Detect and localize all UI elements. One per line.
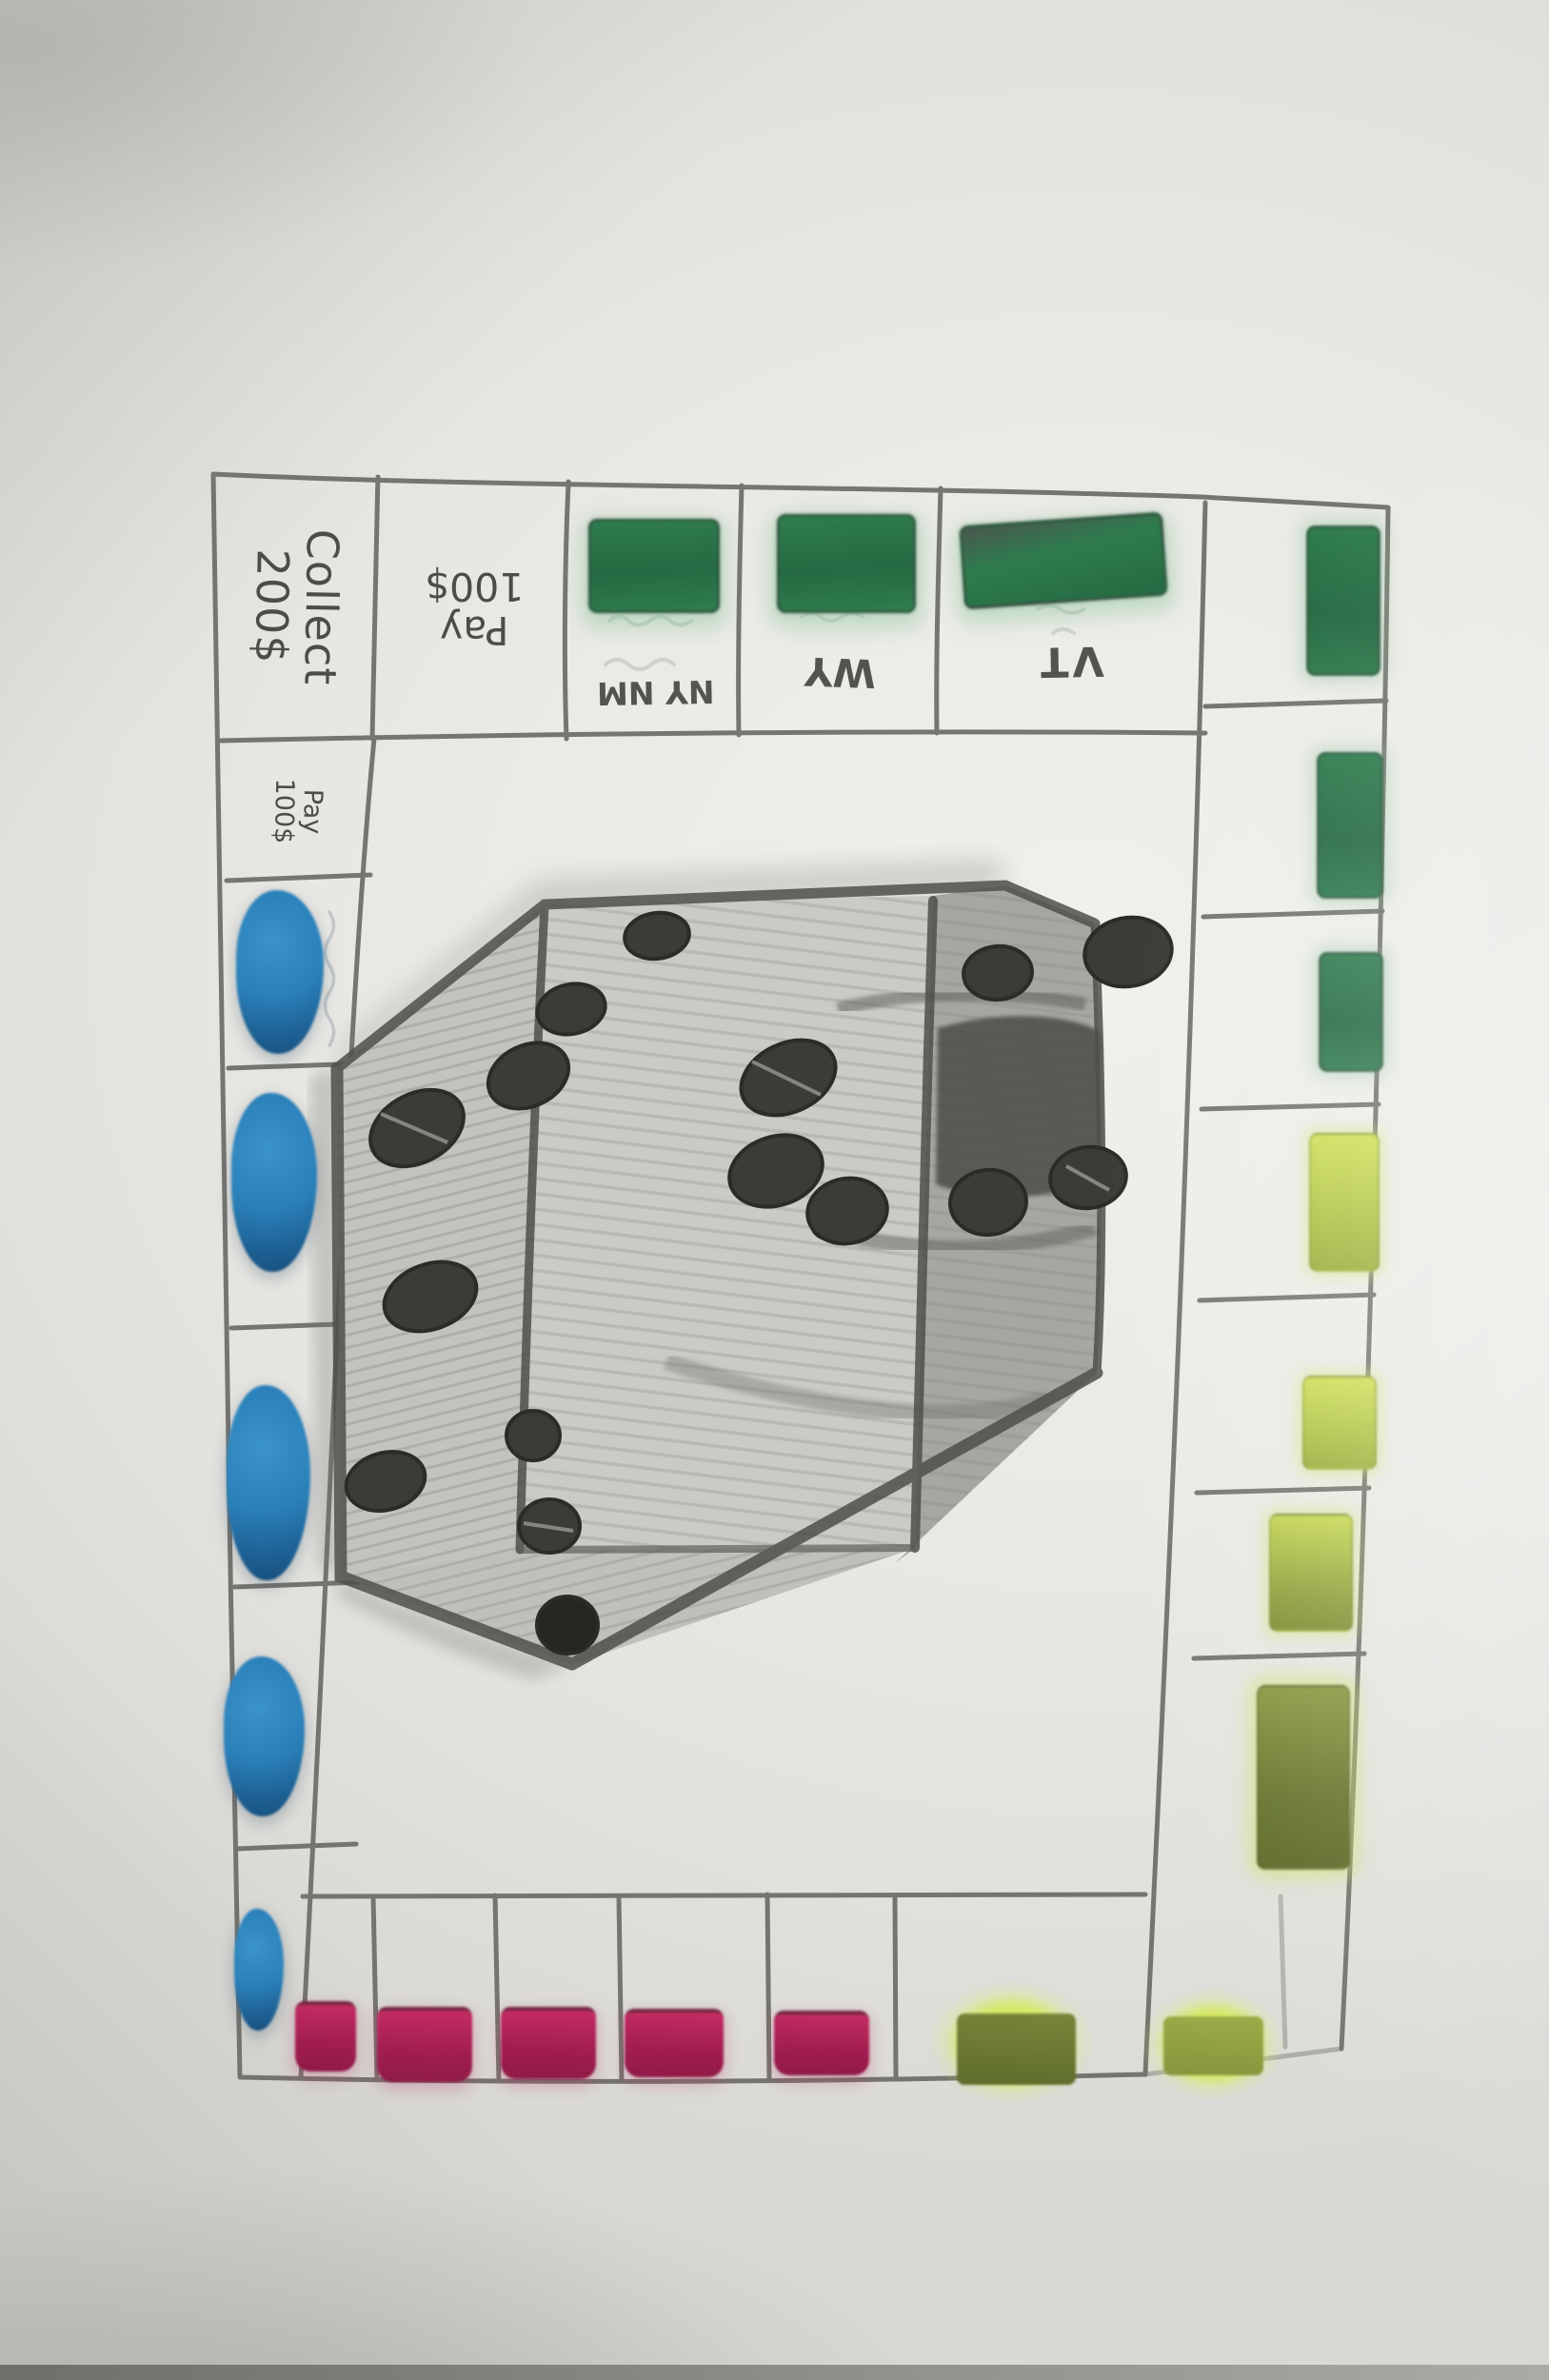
corner-collect-200-label: Collect 200$ [215, 473, 377, 742]
die-sketch [310, 863, 1178, 1679]
pay-100-left-text: Pay 100$ [268, 778, 327, 844]
green-bar-top-1 [588, 519, 720, 613]
green-bar-right-corner [1306, 526, 1380, 676]
photo-of-hand-drawn-board-game: Collect 200$ Pay 100$ Pay 100$ NY NM WY … [0, 0, 1549, 2380]
chartreuse-blob-bottom-2-core [1163, 2016, 1263, 2075]
pink-bar-5 [774, 2011, 869, 2075]
chartreuse-bar-right-3 [1269, 1514, 1353, 1632]
green-bar-right-3 [1319, 952, 1383, 1072]
chartreuse-bar-right-1 [1309, 1133, 1380, 1272]
green-bar-right-2 [1317, 752, 1383, 899]
pay-100-top-label: Pay 100$ [379, 476, 569, 739]
property-abbr-1: NY NM [571, 657, 741, 725]
pink-bar-1 [295, 2001, 356, 2072]
pink-bar-3 [501, 2007, 596, 2079]
green-bar-top-2 [777, 514, 916, 613]
pink-bar-4 [625, 2009, 724, 2077]
green-bar-top-3 [959, 512, 1168, 610]
pay-100-top-text: Pay 100$ [425, 564, 524, 651]
pay-100-left-label: Pay 100$ [225, 741, 369, 882]
property-abbr-3: VT [988, 625, 1152, 697]
corner-collect-200-text: Collect 200$ [246, 528, 347, 686]
pink-bar-2 [377, 2007, 472, 2082]
chartreuse-bar-right-2 [1302, 1376, 1377, 1470]
chartreuse-blob-bottom-1-core [957, 2013, 1076, 2085]
olive-bar-right-4 [1257, 1685, 1350, 1870]
property-abbr-2: WY [760, 636, 920, 706]
paper-edge-shadow [0, 2365, 1549, 2380]
